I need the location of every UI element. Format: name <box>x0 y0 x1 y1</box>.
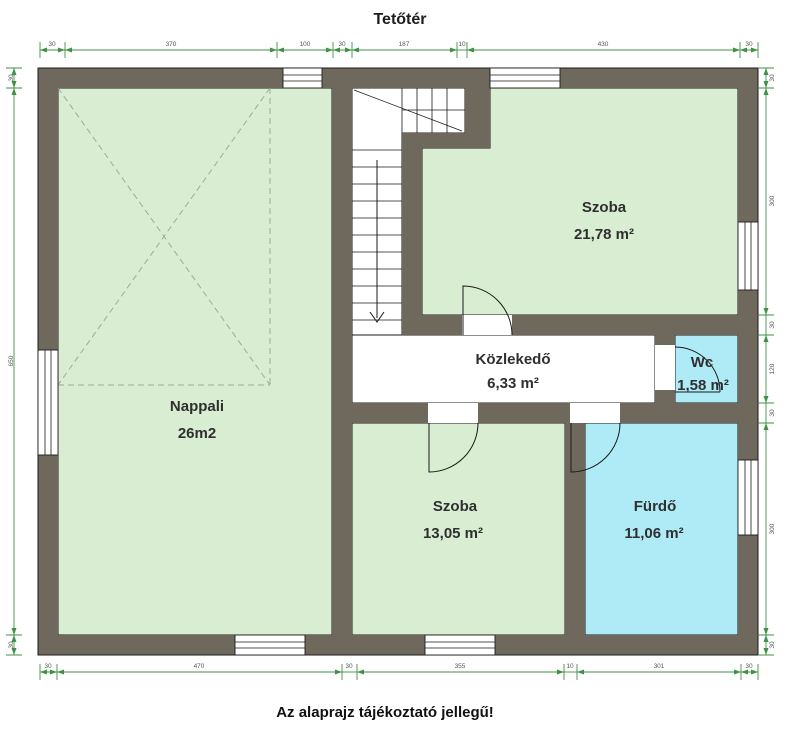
window-icon <box>38 350 58 455</box>
dim-label: 30 <box>769 74 776 82</box>
dim-label: 30 <box>745 663 753 670</box>
dim-label: 300 <box>769 195 776 206</box>
dim-label: 30 <box>769 409 776 417</box>
dim-label: 355 <box>455 663 466 670</box>
dim-label: 430 <box>598 41 609 48</box>
wall-segment <box>738 88 758 222</box>
dim-label: 30 <box>769 321 776 329</box>
wall-segment <box>495 635 758 655</box>
room-area: 6,33 m² <box>487 375 539 392</box>
dim-label: 30 <box>745 41 753 48</box>
dim-label: 30 <box>8 74 15 82</box>
dim-label: 650 <box>8 355 15 366</box>
plan-title: Tetőtér <box>373 11 426 28</box>
wall-segment <box>655 390 675 403</box>
room-name: Wc <box>691 354 714 371</box>
dim-label: 120 <box>769 363 776 374</box>
room-name: Fürdő <box>634 498 677 515</box>
room-area: 13,05 m² <box>423 525 483 542</box>
wall-segment <box>620 403 738 423</box>
room-area: 21,78 m² <box>574 226 634 243</box>
wall-segment <box>402 133 490 148</box>
dim-label: 301 <box>654 663 665 670</box>
room-name: Szoba <box>582 199 627 216</box>
door-opening <box>655 345 675 390</box>
window-icon <box>738 460 758 535</box>
wall-segment <box>38 455 58 635</box>
dim-label: 30 <box>769 641 776 649</box>
wall-segment <box>38 88 58 350</box>
rooms-group <box>58 88 738 635</box>
room-name: Közlekedő <box>475 351 550 368</box>
door-opening <box>428 403 478 423</box>
dim-label: 10 <box>458 41 466 48</box>
wall-segment <box>38 68 283 88</box>
wall-segment <box>352 403 428 423</box>
wall-segment <box>402 148 422 335</box>
wall-segment <box>565 423 585 635</box>
window-icon <box>235 635 305 655</box>
dim-label: 370 <box>166 41 177 48</box>
wall-segment <box>512 315 738 335</box>
room-nappali <box>58 88 332 635</box>
window-icon <box>283 68 322 88</box>
wall-segment <box>478 403 570 423</box>
room-name: Nappali <box>170 398 224 415</box>
dim-label: 470 <box>194 663 205 670</box>
dim-label: 30 <box>44 663 52 670</box>
room-area: 11,06 m² <box>624 525 683 542</box>
wall-segment <box>655 335 675 345</box>
wall-segment <box>560 68 758 88</box>
room-name: Szoba <box>433 498 478 515</box>
wall-segment <box>402 315 462 335</box>
wall-segment <box>332 88 352 635</box>
wall-segment <box>465 88 490 133</box>
wall-segment <box>305 635 425 655</box>
window-icon <box>738 222 758 290</box>
window-icon <box>490 68 560 88</box>
dim-label: 187 <box>399 41 410 48</box>
dim-label: 30 <box>48 41 56 48</box>
room-area: 26m2 <box>178 425 216 442</box>
door-opening <box>570 403 620 423</box>
dim-label: 10 <box>566 663 574 670</box>
room-kozlekedo <box>352 335 655 403</box>
floor-plan-page: Tetőtér <box>0 0 800 735</box>
dim-label: 300 <box>769 523 776 534</box>
floor-plan-svg: Tetőtér <box>0 0 800 735</box>
wall-segment <box>738 290 758 460</box>
window-icon <box>425 635 495 655</box>
wall-segment <box>38 635 235 655</box>
footer-note: Az alaprajz tájékoztató jellegű! <box>276 704 494 721</box>
dim-label: 100 <box>300 41 311 48</box>
dim-label: 30 <box>8 641 15 649</box>
dim-label: 30 <box>345 663 353 670</box>
room-area: 1,58 m² <box>677 377 729 394</box>
wall-segment <box>738 535 758 635</box>
door-opening <box>462 315 512 335</box>
wall-segment <box>322 68 490 88</box>
dim-label: 30 <box>338 41 346 48</box>
